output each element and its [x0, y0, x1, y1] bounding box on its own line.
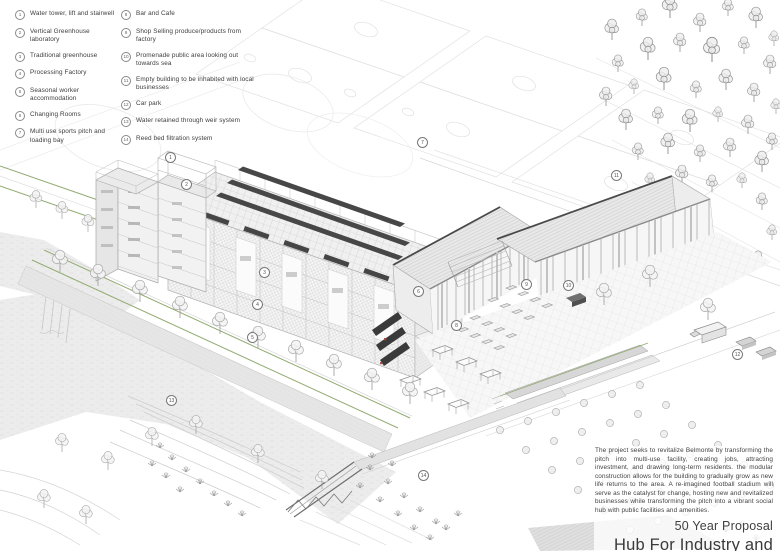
- accommodation-block: [96, 160, 158, 283]
- legend-number-badge: 3: [15, 52, 25, 62]
- legend-label: Empty building to be inhabited with loca…: [136, 76, 257, 93]
- legend-label: Seasonal worker accommodation: [30, 87, 115, 104]
- legend-item: 13Water retained through weir system: [121, 117, 257, 127]
- legend-label: Changing Rooms: [30, 111, 81, 119]
- legend-label: Car park: [136, 100, 161, 108]
- legend-number-badge: 10: [121, 52, 131, 62]
- legend-item: 6Changing Rooms: [15, 111, 115, 121]
- legend-number-badge: 8: [121, 10, 131, 20]
- legend-item: 10Promenade public area looking out towa…: [121, 52, 257, 69]
- legend-number-badge: 1: [15, 10, 25, 20]
- legend-number-badge: 2: [15, 28, 25, 38]
- architectural-presentation-board: 1Water tower, lift and stairwell2Vertica…: [0, 0, 780, 551]
- legend-item: 3Traditional greenhouse: [15, 52, 115, 62]
- legend-label: Traditional greenhouse: [30, 52, 97, 60]
- legend-label: Shop Selling produce/products from facto…: [136, 28, 257, 45]
- legend-label: Water retained through weir system: [136, 117, 240, 125]
- proposal-subtitle: 50 Year Proposal: [595, 519, 773, 533]
- legend-number-badge: 14: [121, 135, 131, 145]
- legend-item: 8Bar and Cafe: [121, 10, 257, 20]
- legend-item: 4Processing Factory: [15, 69, 115, 79]
- legend-number-badge: 12: [121, 100, 131, 110]
- legend-label: Bar and Cafe: [136, 10, 175, 18]
- legend-item: 14Reed bed filtration system: [121, 135, 257, 145]
- legend-label: Water tower, lift and stairwell: [30, 10, 114, 18]
- legend-item: 12Car park: [121, 100, 257, 110]
- legend-number-badge: 4: [15, 69, 25, 79]
- legend-item: 7Multi use sports pitch and loading bay: [15, 128, 115, 145]
- legend-column-1: 1Water tower, lift and stairwell2Vertica…: [15, 10, 115, 152]
- legend-number-badge: 13: [121, 117, 131, 127]
- legend-item: 1Water tower, lift and stairwell: [15, 10, 115, 20]
- legend-number-badge: 9: [121, 28, 131, 38]
- title-block: The project seeks to revitalize Belmonte…: [594, 446, 773, 551]
- legend-column-2: 8Bar and Cafe9Shop Selling produce/produ…: [121, 10, 257, 152]
- legend-number-badge: 6: [15, 111, 25, 121]
- legend-number-badge: 7: [15, 128, 25, 138]
- legend: 1Water tower, lift and stairwell2Vertica…: [15, 10, 257, 152]
- legend-label: Vertical Greenhouse laboratory: [30, 28, 115, 45]
- car-park: [690, 322, 776, 360]
- legend-number-badge: 11: [121, 76, 131, 86]
- legend-item: 2Vertical Greenhouse laboratory: [15, 28, 115, 45]
- legend-label: Multi use sports pitch and loading bay: [30, 128, 115, 145]
- legend-label: Reed bed filtration system: [136, 135, 212, 143]
- legend-label: Promenade public area looking out toward…: [136, 52, 257, 69]
- project-description: The project seeks to revitalize Belmonte…: [595, 447, 773, 515]
- legend-item: 11Empty building to be inhabited with lo…: [121, 76, 257, 93]
- legend-number-badge: 5: [15, 87, 25, 97]
- legend-item: 9Shop Selling produce/products from fact…: [121, 28, 257, 45]
- page-title: Hub For Industry and Community: [595, 536, 773, 551]
- legend-item: 5Seasonal worker accommodation: [15, 87, 115, 104]
- legend-label: Processing Factory: [30, 69, 87, 77]
